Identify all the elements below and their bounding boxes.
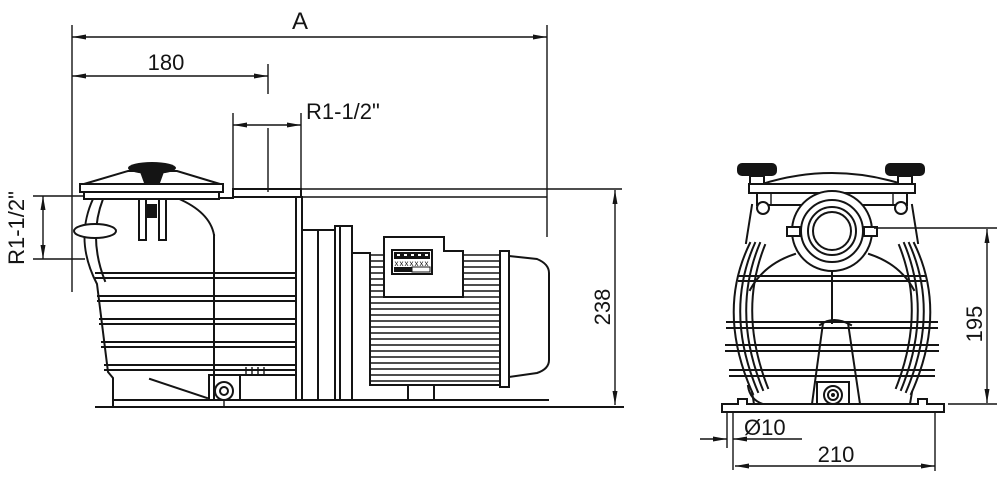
nameplate: xxxxxxx bbox=[392, 250, 432, 274]
drain-plug-front bbox=[817, 382, 849, 404]
lid-knob-left bbox=[737, 163, 777, 176]
dim-inlet-port: R1-1/2" bbox=[4, 191, 29, 265]
dim-outlet-port: R1-1/2" bbox=[306, 99, 380, 124]
motor-end-cap bbox=[509, 256, 549, 377]
technical-drawing: xxxxxxx A bbox=[0, 0, 1000, 482]
dim-overall-height: 238 bbox=[590, 289, 615, 326]
outlet-flange bbox=[233, 189, 301, 197]
motor-foot bbox=[408, 385, 434, 400]
lid-knob bbox=[128, 162, 176, 174]
dim-port-center-height: 195 bbox=[962, 306, 987, 343]
motor-bracket bbox=[302, 226, 352, 400]
motor-fins-lower bbox=[370, 297, 500, 381]
dim-mount-hole: Ø10 bbox=[744, 415, 786, 440]
pump-dimension-drawing: xxxxxxx A bbox=[0, 0, 1000, 482]
bolt-hole-left bbox=[757, 202, 769, 214]
side-view: xxxxxxx bbox=[74, 162, 623, 407]
bolt-hole-right bbox=[895, 202, 907, 214]
bearing-ring bbox=[500, 251, 509, 387]
lid-knob-right bbox=[885, 163, 925, 176]
dim-overall-length: A bbox=[292, 8, 308, 35]
inlet-port bbox=[74, 224, 116, 238]
front-body bbox=[722, 191, 944, 412]
drain-plug-side bbox=[215, 382, 233, 400]
dim-inlet-to-outlet: 180 bbox=[148, 50, 185, 75]
dim-base-length: 210 bbox=[818, 442, 855, 467]
front-view bbox=[722, 163, 944, 412]
motor: xxxxxxx bbox=[352, 237, 549, 400]
